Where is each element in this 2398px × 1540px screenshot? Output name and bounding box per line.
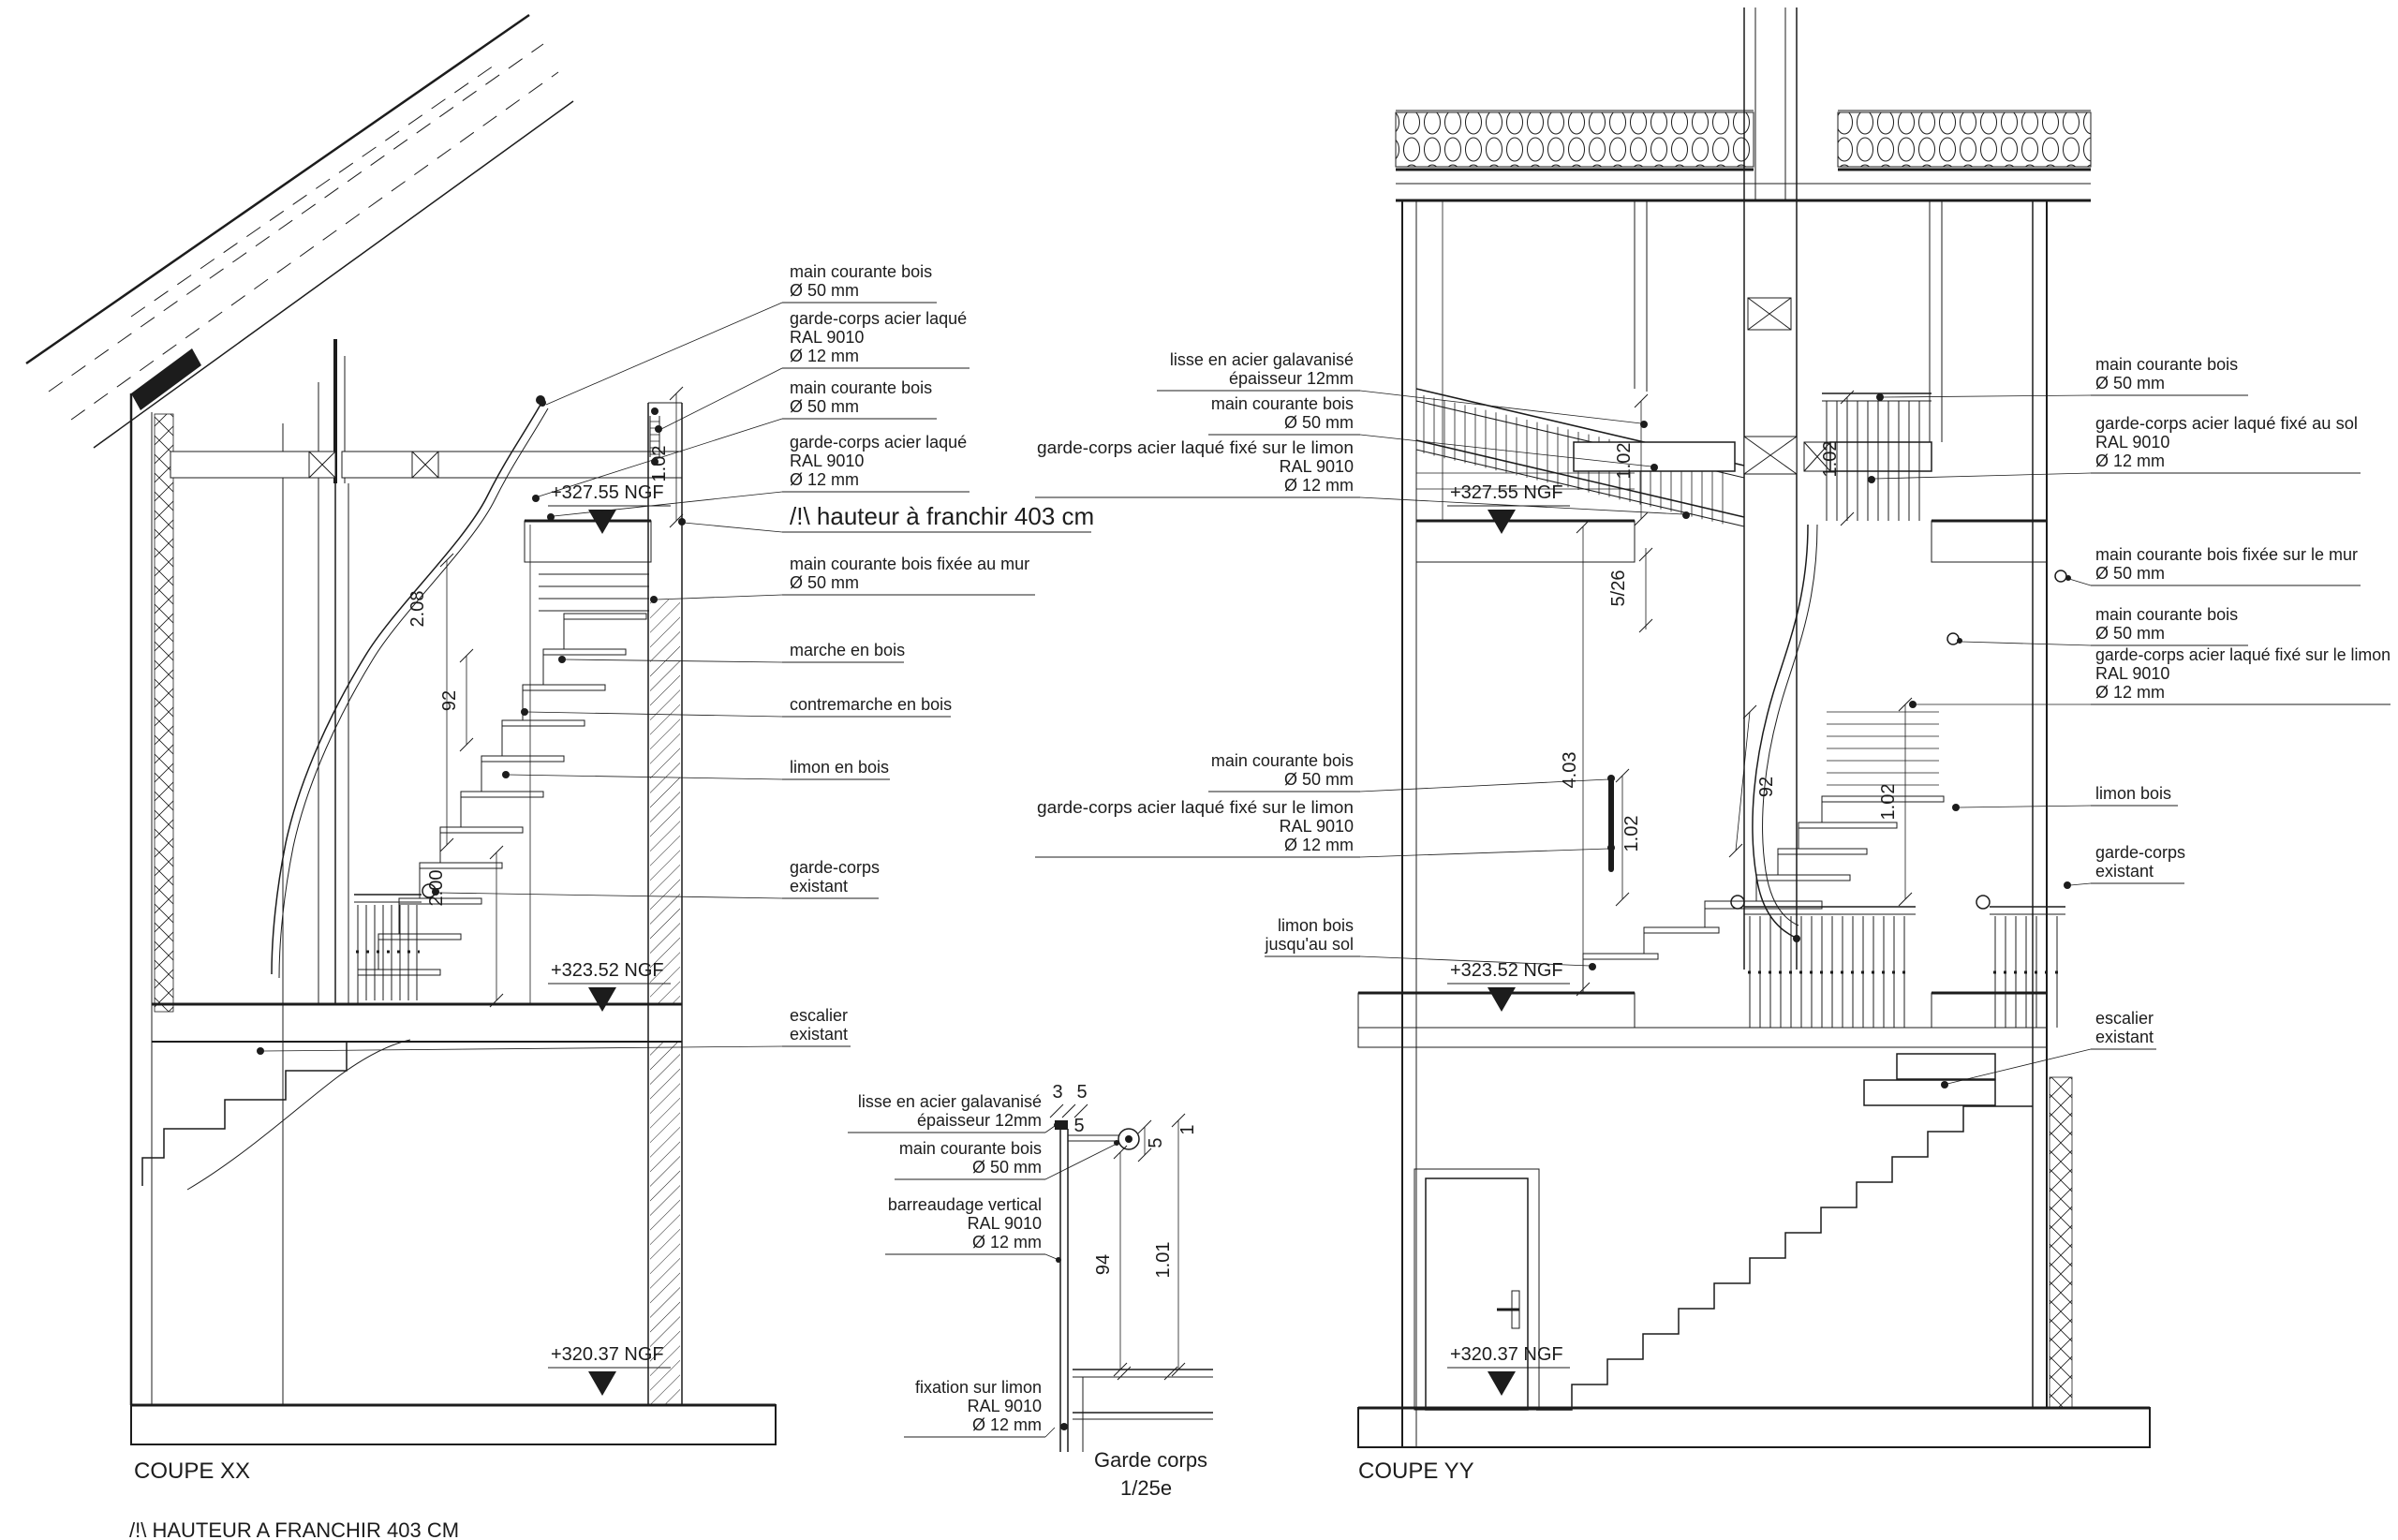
leader-dot xyxy=(558,656,566,663)
label-line: barreaudage vertical xyxy=(888,1195,1042,1214)
label-line: Ø 50 mm xyxy=(2095,564,2165,583)
slab-base xyxy=(131,1405,776,1444)
coupe-xx-section: +327.55 NGF +323.52 NGF +320.37 NGF 1.02… xyxy=(26,15,1094,1540)
roof-slope xyxy=(26,15,573,448)
leader-line xyxy=(657,595,782,600)
label-line: main courante bois xyxy=(899,1139,1042,1158)
label-line: garde-corps xyxy=(2095,843,2185,862)
label-line: Ø 50 mm xyxy=(972,1158,1042,1177)
leader-dot xyxy=(1868,476,1875,483)
handrail-section-icon xyxy=(2055,570,2066,582)
label-line: RAL 9010 xyxy=(968,1397,1042,1415)
label-line: Ø 12 mm xyxy=(972,1415,1042,1434)
slab-upper-yy xyxy=(1416,521,2047,562)
balustrade-existing xyxy=(354,884,436,1000)
leader-dot xyxy=(1056,1257,1061,1263)
section-title: COUPE YY xyxy=(1358,1459,1474,1484)
label-line: escalier xyxy=(790,1006,848,1025)
level-text: +320.37 NGF xyxy=(1450,1344,1563,1365)
winder-stair-yy xyxy=(1583,525,1944,993)
detail-dimensions: 3 5 5 5 94 1 1.01 xyxy=(1050,1082,1198,1376)
label-line: contremarche en bois xyxy=(790,695,952,714)
label-line: RAL 9010 xyxy=(2095,664,2169,683)
dim-text: 92 xyxy=(1756,777,1777,797)
dim-text: 5 xyxy=(1146,1137,1166,1148)
leader-dot xyxy=(521,708,528,716)
label-line: RAL 9010 xyxy=(790,328,864,347)
label-line: RAL 9010 xyxy=(968,1214,1042,1233)
leader-line xyxy=(1045,1254,1057,1259)
dim-text: 3 xyxy=(1052,1082,1062,1103)
stair-winders xyxy=(358,525,646,1004)
dim-text: 1.02 xyxy=(1621,816,1642,852)
leader-dot xyxy=(1607,844,1615,851)
label-line: Ø 12 mm xyxy=(790,347,859,365)
dim-text: 1.02 xyxy=(1878,784,1899,821)
wall-right-hatched xyxy=(648,403,682,1405)
label-line: fixation sur limon xyxy=(915,1378,1042,1397)
label-line: RAL 9010 xyxy=(1280,457,1354,476)
leader-line xyxy=(438,893,782,898)
dim-text: 92 xyxy=(439,690,460,711)
label-line: limon bois xyxy=(1278,916,1354,935)
label-line: main courante bois xyxy=(790,378,932,397)
leader-dot xyxy=(1952,804,1960,811)
handrail-curve xyxy=(272,395,548,978)
leader-dot xyxy=(257,1047,264,1055)
leader-line xyxy=(661,368,782,429)
leader-dot xyxy=(2064,881,2071,889)
note-hauteur: /!\ hauteur à franchir 403 cm xyxy=(790,502,1094,530)
leader-line xyxy=(1961,642,2091,645)
leader-dot xyxy=(1650,464,1658,471)
leader-line xyxy=(1883,395,2091,397)
label-line: main courante bois xyxy=(1211,394,1354,413)
dim-text: 94 xyxy=(1093,1254,1114,1275)
drawing-sheet: +327.55 NGF +323.52 NGF +320.37 NGF 1.02… xyxy=(0,0,2398,1540)
leader-dot xyxy=(1607,775,1615,782)
leader-dot xyxy=(502,771,510,778)
label-line: garde-corps xyxy=(790,858,880,877)
label-line: RAL 9010 xyxy=(1280,817,1354,836)
label-line: limon bois xyxy=(2095,784,2171,803)
detail-annotations: lisse en acier galavanisé épaisseur 12mm… xyxy=(848,1092,1119,1437)
label-line: existant xyxy=(790,1025,848,1044)
annotations-yy-right: main courante bois Ø 50 mm garde-corps a… xyxy=(1868,355,2391,1088)
dim-text: 1.02 xyxy=(649,446,670,482)
level-text: +327.55 NGF xyxy=(1450,482,1563,503)
label-line: limon en bois xyxy=(790,758,889,777)
label-line: épaisseur 12mm xyxy=(917,1111,1042,1130)
leader-dot xyxy=(1054,1122,1059,1128)
level-text: +323.52 NGF xyxy=(551,960,664,981)
leader-dot xyxy=(1957,638,1962,644)
dim-text: 5 xyxy=(1076,1082,1087,1103)
label-line: Ø 12 mm xyxy=(790,470,859,489)
plan-canvas: +327.55 NGF +323.52 NGF +320.37 NGF 1.02… xyxy=(0,0,2398,1540)
balustrades-landing xyxy=(1731,896,2065,1028)
leader-dot xyxy=(1909,701,1917,708)
leader-line xyxy=(2069,579,2091,585)
leader-dot xyxy=(532,495,540,502)
leader-line xyxy=(546,303,782,405)
label-line: Ø 50 mm xyxy=(2095,624,2165,643)
door xyxy=(1414,1169,1539,1410)
label-line: Ø 12 mm xyxy=(1284,476,1354,495)
walls-yy xyxy=(1402,200,2072,1447)
label-line: main courante bois xyxy=(2095,605,2238,624)
leader-dot xyxy=(547,513,555,521)
detail-drawing xyxy=(1055,1120,1213,1452)
leader-dot xyxy=(678,518,686,526)
label-line: jusqu'au sol xyxy=(1265,935,1354,954)
label-line: main courante bois xyxy=(790,262,932,281)
detail-scale: 1/25e xyxy=(1120,1476,1172,1500)
label-line: RAL 9010 xyxy=(790,452,864,470)
level-marker-icon xyxy=(588,1371,616,1396)
leader-line xyxy=(1045,1126,1055,1133)
label-line: garde-corps acier laqué fixé sur le limo… xyxy=(2095,645,2391,664)
dim-text: 5/26 xyxy=(1608,570,1629,607)
label-line: lisse en acier galavanisé xyxy=(858,1092,1042,1111)
leader-dot xyxy=(1114,1140,1119,1146)
leader-line xyxy=(2070,883,2091,885)
slab-upper xyxy=(525,521,651,611)
section-title: COUPE XX xyxy=(134,1459,250,1484)
label-line: escalier xyxy=(2095,1009,2154,1028)
label-line: garde-corps acier laqué fixé au sol xyxy=(2095,414,2358,433)
label-line: main courante bois xyxy=(1211,751,1354,770)
label-line: Ø 12 mm xyxy=(2095,683,2165,702)
leader-line xyxy=(1045,1145,1115,1179)
leader-dot xyxy=(1589,963,1596,970)
label-line: épaisseur 12mm xyxy=(1229,369,1354,388)
leader-dot xyxy=(1640,421,1648,428)
dim-text: 4.03 xyxy=(1560,752,1580,789)
dim-text: 2.00 xyxy=(426,870,447,907)
dim-text: 2.08 xyxy=(407,591,428,628)
level-text: +320.37 NGF xyxy=(551,1344,664,1365)
label-line: Ø 12 mm xyxy=(1284,836,1354,854)
label-line: main courante bois fixée sur le mur xyxy=(2095,545,2358,564)
leader-line xyxy=(1874,473,2091,479)
stair-existing xyxy=(142,1040,410,1190)
label-line: existant xyxy=(790,877,848,896)
label-line: marche en bois xyxy=(790,641,905,659)
leader-dot xyxy=(650,596,658,603)
level-text: +327.55 NGF xyxy=(551,482,664,503)
slab-base-yy xyxy=(1358,1408,2150,1447)
label-line: Ø 50 mm xyxy=(1284,413,1354,432)
label-line: Ø 50 mm xyxy=(2095,374,2165,392)
label-line: Ø 50 mm xyxy=(790,281,859,300)
stair-existing-yy xyxy=(1536,1054,2033,1410)
leader-dot xyxy=(1876,393,1884,401)
garde-corps-detail: 3 5 5 5 94 1 1.01 lisse en acier galavan… xyxy=(848,1082,1213,1500)
label-line: Ø 50 mm xyxy=(1284,770,1354,789)
label-line: Ø 50 mm xyxy=(790,573,859,592)
leader-dot xyxy=(432,888,439,896)
sheet-footnote: /!\ HAUTEUR A FRANCHIR 403 CM xyxy=(129,1518,459,1540)
leader-line xyxy=(1360,849,1608,857)
dim-text: 1.02 xyxy=(1614,443,1635,480)
label-line: Ø 12 mm xyxy=(972,1233,1042,1251)
leader-line xyxy=(1959,806,2091,807)
level-marker-icon xyxy=(1488,1371,1516,1396)
dimensions-xx: 1.02 2.08 92 2.00 xyxy=(407,387,683,1007)
leader-line xyxy=(509,775,782,779)
dimensions-yy: 1.02 5/26 1.02 4.03 1.02 92 1.02 xyxy=(1560,391,1912,996)
roof-flat xyxy=(1396,111,2091,200)
leader-line xyxy=(263,1046,782,1051)
leader-dot xyxy=(1682,511,1690,519)
label-line: garde-corps acier laqué fixé sur le limo… xyxy=(1037,798,1354,817)
level-markers-yy: +327.55 NGF +323.52 NGF +320.37 NGF xyxy=(1447,482,1570,1396)
detail-title: Garde corps xyxy=(1094,1448,1207,1472)
leader-dot xyxy=(1941,1081,1948,1088)
leader-dot xyxy=(2065,575,2071,581)
leader-dot xyxy=(539,399,546,407)
dim-text: 1 xyxy=(1177,1124,1198,1134)
handrail-section-icon xyxy=(1947,633,1959,644)
label-line: Ø 50 mm xyxy=(790,397,859,416)
label-line: RAL 9010 xyxy=(2095,433,2169,452)
label-line: existant xyxy=(2095,1028,2154,1046)
dim-text: 1.01 xyxy=(1153,1242,1174,1279)
label-line: main courante bois fixée au mur xyxy=(790,555,1029,573)
leader-line xyxy=(684,523,782,532)
wall-left xyxy=(131,393,173,1405)
level-marker-icon xyxy=(1488,987,1516,1012)
leader-line xyxy=(1045,1428,1055,1437)
label-line: Ø 12 mm xyxy=(2095,452,2165,470)
dim-text: 1.02 xyxy=(1820,441,1841,478)
slab-mid-yy xyxy=(1358,993,2047,1047)
dim-text: 5 xyxy=(1073,1116,1084,1136)
leader-dot xyxy=(655,425,662,433)
label-line: garde-corps acier laqué xyxy=(790,433,967,452)
coupe-yy-section: +327.55 NGF +323.52 NGF +320.37 NGF 1.02… xyxy=(1035,7,2391,1484)
level-text: +323.52 NGF xyxy=(1450,960,1563,981)
label-line: existant xyxy=(2095,862,2154,881)
label-line: lisse en acier galavanisé xyxy=(1170,350,1354,369)
label-line: main courante bois xyxy=(2095,355,2238,374)
label-line: garde-corps acier laqué fixé sur le limo… xyxy=(1037,438,1354,457)
label-line: garde-corps acier laqué xyxy=(790,309,967,328)
level-marker-icon xyxy=(588,987,616,1012)
